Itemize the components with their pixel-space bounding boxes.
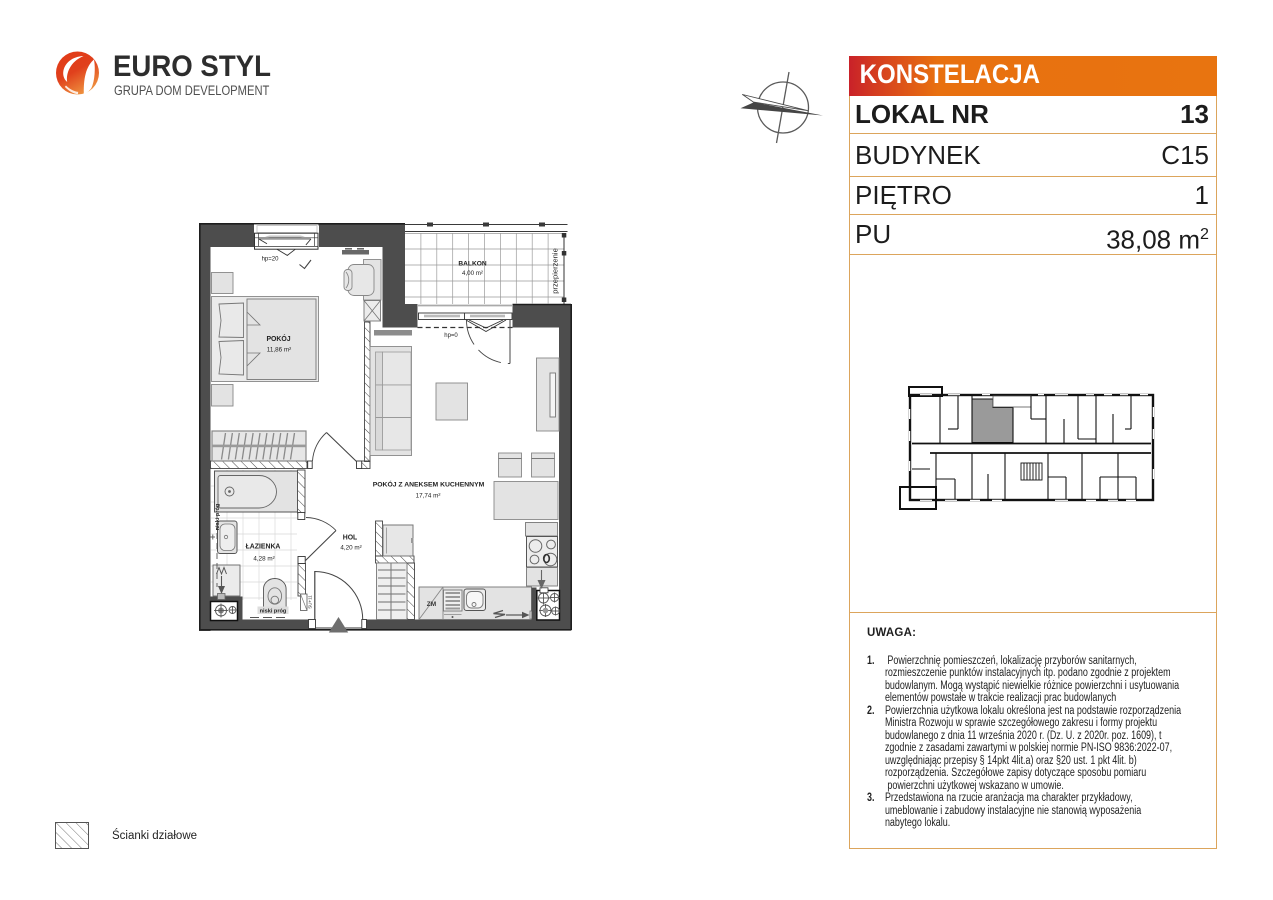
svg-text:SU+11: SU+11 <box>308 595 313 609</box>
svg-text:hp=0: hp=0 <box>444 333 458 339</box>
svg-text:11,86 m²: 11,86 m² <box>267 347 291 354</box>
svg-text:BALKON: BALKON <box>458 261 486 268</box>
svg-text:hp=20: hp=20 <box>262 257 280 263</box>
svg-text:4,00 m²: 4,00 m² <box>462 270 483 277</box>
svg-text:ŁAZIENKA: ŁAZIENKA <box>246 544 281 551</box>
svg-text:niski próg: niski próg <box>260 609 287 615</box>
svg-text:przepierzenie: przepierzenie <box>551 248 560 294</box>
svg-text:ZM: ZM <box>427 601 436 608</box>
svg-text:niski próg: niski próg <box>215 503 221 530</box>
svg-text:4,28 m²: 4,28 m² <box>253 556 274 563</box>
svg-text:4,20 m²: 4,20 m² <box>340 545 361 552</box>
svg-text:17,74 m²: 17,74 m² <box>416 493 441 500</box>
svg-text:POKÓJ: POKÓJ <box>266 334 290 343</box>
svg-text:HOL: HOL <box>343 535 358 542</box>
svg-text:POKÓJ Z ANEKSEM KUCHENNYM: POKÓJ Z ANEKSEM KUCHENNYM <box>373 480 485 489</box>
